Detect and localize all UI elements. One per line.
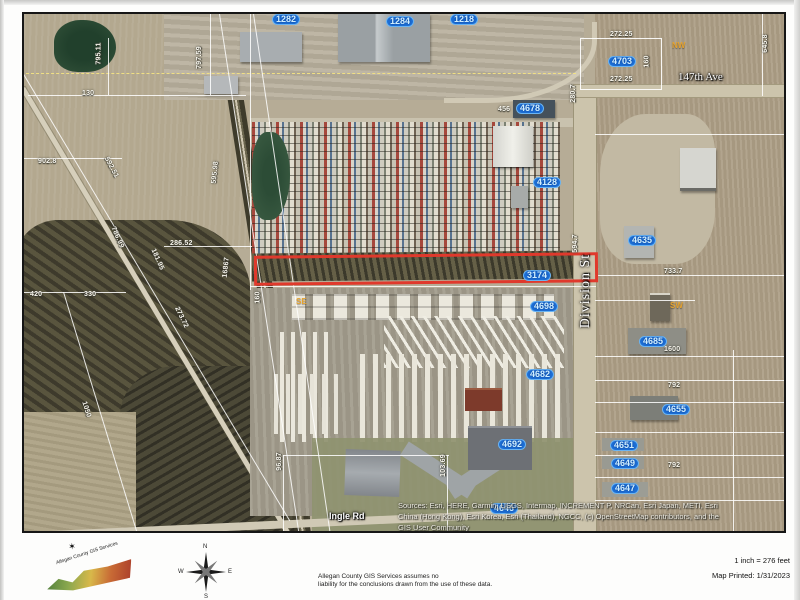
dimension-label: 902.8: [38, 158, 57, 165]
parcel-line: [595, 380, 784, 381]
dimension-label: 795.11: [96, 42, 103, 64]
parcel-line: [595, 402, 784, 403]
parcel-line: [210, 14, 211, 95]
map-scale-text: 1 inch = 276 feet: [620, 556, 790, 565]
house: [344, 449, 401, 497]
dimension-label: 792: [668, 382, 680, 389]
street-label: Ingle Rd: [329, 512, 365, 521]
parcel-address-label: 1218: [450, 14, 478, 25]
dimension-label: 280.7: [570, 84, 577, 103]
compass-south-label: S: [204, 594, 208, 600]
attribution-line: China (Hong Kong), Esri Korea, Esri (Tha…: [398, 512, 719, 521]
parcel-line: [595, 432, 784, 433]
attribution-line: GIS User Community: [398, 523, 469, 532]
quadrant-label: NW: [672, 42, 685, 50]
parcel-line: [108, 38, 109, 95]
parcel-address-label: 4703: [608, 56, 636, 67]
dimension-label: 103.69: [440, 454, 447, 477]
dimension-label: 733.7: [664, 268, 683, 275]
dimension-label: 456: [498, 106, 510, 113]
parcel-address-label: 3174: [523, 270, 551, 281]
parcel-address-label: 4655: [662, 404, 690, 415]
pond-northwest: [54, 20, 116, 72]
compass-rose: N S E W: [178, 544, 234, 600]
gis-map-printout-page: 795.11797.59130902.8592.51595.98286.5278…: [0, 0, 800, 600]
quadrant-label: SW: [670, 302, 683, 310]
parcel-line: [733, 350, 734, 531]
scale-info: 1 inch = 276 feet Map Printed: 1/31/2023: [620, 556, 790, 586]
dimension-label: 272.25: [610, 76, 633, 83]
parcel-line: [595, 275, 784, 276]
dimension-label: 1600: [664, 346, 680, 353]
attribution-line: Sources: Esri, HERE, Garmin, USGS, Inter…: [398, 501, 718, 510]
parcel-line: [283, 455, 449, 456]
parcel-address-label: 4635: [628, 235, 656, 246]
industrial-building: [338, 14, 430, 62]
parcel-line: [250, 286, 596, 287]
dimension-label: 594.7: [572, 234, 579, 253]
parcel-address-label: 4128: [533, 177, 561, 188]
dimension-label: 286.52: [170, 240, 193, 247]
parcel-line: [595, 455, 784, 456]
parcel-address-label: 4678: [516, 103, 544, 114]
parcel-address-label: 4698: [530, 301, 558, 312]
parcel-line: [595, 134, 784, 135]
parcel-line: [595, 477, 784, 478]
trailer-cluster: [274, 374, 344, 434]
parcel-line: [762, 14, 763, 96]
parcel-line: [595, 356, 784, 357]
disclaimer-line1: Allegan County GIS Services assumes no: [318, 573, 518, 581]
compass-west-label: W: [178, 569, 184, 575]
parcel-line: [28, 95, 246, 96]
large-white-building: [493, 126, 533, 167]
disclaimer-text: Allegan County GIS Services assumes no l…: [318, 573, 518, 589]
east-building: [680, 148, 716, 191]
aerial-map: 795.11797.59130902.8592.51595.98286.5278…: [22, 12, 786, 533]
dimension-label: 160: [644, 55, 651, 67]
dimension-label: 96.87: [276, 452, 283, 471]
allegan-county-gis-logo: ✶ Allegan County GIS Services: [40, 543, 143, 600]
dimension-label: 420: [30, 291, 42, 298]
barn-building: [650, 293, 670, 321]
parcel-address-label: 4682: [526, 369, 554, 380]
street-label: Division St: [579, 254, 593, 328]
scan-edge-right: [794, 0, 800, 600]
logo-text: Allegan County GIS Services: [55, 540, 118, 566]
scan-edge-top: [0, 0, 800, 5]
street-label: 147th Ave: [678, 72, 723, 83]
small-building: [511, 186, 528, 208]
dimension-label: 797.59: [196, 46, 203, 69]
parcel-line: [250, 14, 251, 290]
red-roof-building: [465, 388, 502, 411]
quadrant-label: SE: [296, 298, 307, 306]
parcel-address-label: 4647: [611, 483, 639, 494]
compass-east-label: E: [228, 569, 232, 575]
parcel-address-label: 4692: [498, 439, 526, 450]
parcel-address-label: 1284: [386, 16, 414, 27]
map-printed-date: Map Printed: 1/31/2023: [620, 571, 790, 580]
scan-edge-left: [0, 0, 4, 600]
logo-bug-icon: ✶: [68, 541, 76, 552]
dimension-label: 272.25: [610, 31, 633, 38]
parcel-address-label: 4649: [611, 458, 639, 469]
parcel-address-label: 4685: [639, 336, 667, 347]
trailer-cluster: [360, 354, 566, 442]
compass-north-label: N: [203, 544, 207, 550]
dimension-label: 130: [82, 90, 94, 97]
dimension-label: 645.8: [762, 34, 769, 53]
parcel-line: [283, 455, 284, 531]
field-bottom-left: [24, 412, 136, 531]
parcel-address-label: 4651: [610, 440, 638, 451]
disclaimer-line2: liability for the conclusions drawn from…: [318, 581, 518, 589]
dimension-label: 792: [668, 462, 680, 469]
dimension-label: 160: [255, 291, 262, 303]
dimension-label: 330: [84, 291, 96, 298]
parcel-address-label: 1282: [272, 14, 300, 25]
